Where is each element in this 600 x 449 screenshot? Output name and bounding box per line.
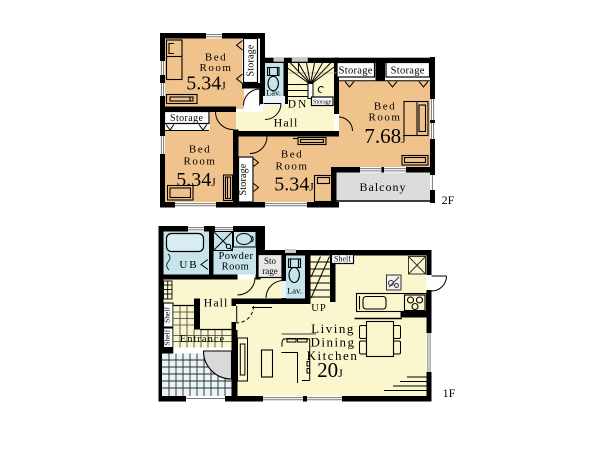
svg-text:Hall: Hall [274,116,299,130]
svg-text:Balcony: Balcony [360,180,407,194]
svg-text:Lav.: Lav. [266,88,281,98]
svg-text:5.34J: 5.34J [176,169,216,191]
svg-text:DN: DN [288,99,309,111]
svg-text:Lav.: Lav. [287,286,302,296]
svg-text:Room: Room [369,112,402,124]
svg-text:Bed: Bed [189,144,211,156]
svg-text:2F: 2F [442,193,455,207]
svg-text:Room: Room [222,262,250,273]
svg-text:Shelf: Shelf [163,329,172,345]
svg-text:Room: Room [184,156,217,168]
svg-text:Storage: Storage [391,66,425,77]
svg-text:7.68J: 7.68J [364,124,406,148]
svg-text:Storage: Storage [245,44,256,76]
svg-text:Hall: Hall [204,296,229,310]
svg-text:UP: UP [311,303,326,314]
svg-text:Storage: Storage [170,113,204,124]
svg-text:Entrance: Entrance [180,334,225,345]
svg-text:5.34J: 5.34J [186,73,226,95]
svg-text:1F: 1F [443,386,456,400]
svg-text:Storage: Storage [238,163,249,195]
svg-text:UB: UB [179,259,198,271]
svg-text:rage: rage [262,266,278,276]
svg-text:Shelf: Shelf [163,307,172,323]
svg-text:Room: Room [276,161,309,173]
svg-text:Bed: Bed [281,149,303,161]
svg-text:Sto: Sto [264,256,277,266]
svg-text:Shelf: Shelf [334,255,351,264]
svg-text:Storage: Storage [339,66,373,77]
svg-text:Storage: Storage [313,100,332,106]
svg-text:Powder: Powder [218,251,253,262]
svg-text:5.34J: 5.34J [274,174,314,196]
